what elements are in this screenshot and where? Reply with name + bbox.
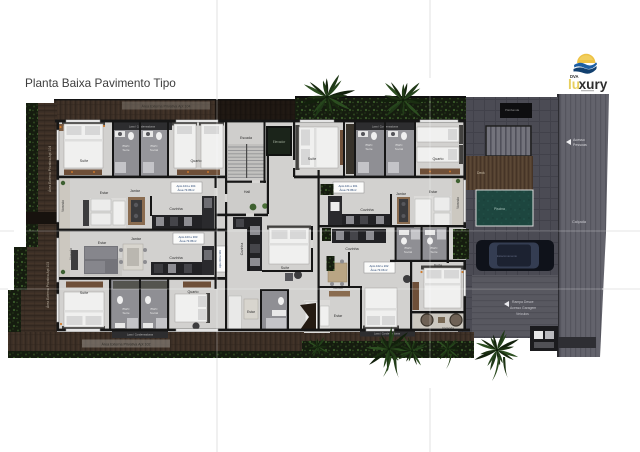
- svg-text:Social: Social: [150, 148, 159, 152]
- svg-text:Planta Baixa Pavimento Tipo: Planta Baixa Pavimento Tipo: [25, 76, 176, 90]
- svg-text:Área Externa Privativa Apt 104: Área Externa Privativa Apt 104: [142, 104, 191, 108]
- svg-text:Área 73.05m²: Área 73.05m²: [180, 239, 197, 243]
- svg-text:Jantar: Jantar: [396, 192, 407, 196]
- svg-text:Jantar: Jantar: [130, 189, 141, 193]
- svg-text:Acesso Garagem: Acesso Garagem: [510, 306, 536, 310]
- svg-text:Área Externa Privativa Apt 103: Área Externa Privativa Apt 103: [46, 262, 50, 308]
- svg-text:Suíte: Suíte: [122, 148, 129, 152]
- svg-text:Social: Social: [150, 311, 159, 315]
- svg-text:Escada: Escada: [240, 136, 252, 140]
- svg-text:Elevador: Elevador: [273, 140, 287, 144]
- svg-text:Suíte: Suíte: [80, 159, 88, 163]
- svg-text:Pessoas: Pessoas: [573, 143, 587, 147]
- svg-text:Suíte: Suíte: [365, 147, 372, 151]
- svg-text:Suíte: Suíte: [434, 264, 442, 268]
- svg-text:Suíte: Suíte: [122, 311, 129, 315]
- svg-text:Acesso: Acesso: [573, 138, 585, 142]
- svg-text:Suíte: Suíte: [80, 291, 88, 295]
- svg-text:Varanda: Varanda: [61, 200, 65, 212]
- svg-text:Piscina: Piscina: [494, 207, 505, 211]
- svg-text:Cozinha: Cozinha: [240, 243, 244, 256]
- svg-text:xury: xury: [579, 77, 608, 92]
- svg-text:Cozinha: Cozinha: [169, 207, 182, 211]
- svg-text:Cozinha: Cozinha: [345, 247, 358, 251]
- svg-text:Área 73.15m²: Área 73.15m²: [371, 268, 388, 272]
- svg-text:Lava / Condensadoras: Lava / Condensadoras: [374, 332, 401, 336]
- svg-text:Calçada: Calçada: [572, 220, 587, 224]
- svg-text:Estar: Estar: [247, 310, 256, 314]
- svg-text:Quarto: Quarto: [188, 290, 199, 294]
- svg-text:Cozinha: Cozinha: [360, 208, 373, 212]
- svg-text:Área 73.05m²: Área 73.05m²: [340, 188, 357, 192]
- svg-text:Lava / Condensadoras: Lava / Condensadoras: [129, 125, 156, 129]
- svg-text:Veículos: Veículos: [516, 312, 529, 316]
- svg-text:Hall: Hall: [244, 190, 250, 194]
- svg-text:Estar: Estar: [98, 241, 107, 245]
- svg-text:Suíte: Suíte: [281, 266, 289, 270]
- svg-text:Suíte: Suíte: [430, 250, 437, 254]
- svg-text:Rampa Desce: Rampa Desce: [512, 300, 534, 304]
- svg-text:Estar: Estar: [100, 191, 109, 195]
- svg-text:Cozinha: Cozinha: [169, 256, 182, 260]
- svg-text:Deck: Deck: [477, 171, 485, 175]
- svg-text:Lava / Condensadoras: Lava / Condensadoras: [127, 333, 154, 337]
- svg-text:Área Externa Privativa Apt 104: Área Externa Privativa Apt 104: [48, 146, 52, 192]
- svg-text:Varanda: Varanda: [69, 248, 73, 260]
- svg-text:Apto 103 e 303: Apto 103 e 303: [218, 250, 222, 268]
- svg-text:Social: Social: [395, 147, 404, 151]
- svg-text:Quarto: Quarto: [191, 159, 202, 163]
- svg-text:Social: Social: [404, 250, 413, 254]
- svg-text:Quarto: Quarto: [433, 157, 444, 161]
- svg-text:Estacionamento: Estacionamento: [497, 254, 518, 258]
- svg-text:Área 73.05m²: Área 73.05m²: [178, 188, 195, 192]
- svg-text:Platibanda: Platibanda: [505, 108, 520, 112]
- svg-text:Estar: Estar: [334, 314, 343, 318]
- svg-text:Suíte: Suíte: [308, 157, 316, 161]
- svg-text:Área Externa Privativa Apt 102: Área Externa Privativa Apt 102: [102, 342, 151, 346]
- svg-text:Jantar: Jantar: [131, 237, 142, 241]
- svg-text:Varanda: Varanda: [456, 197, 460, 209]
